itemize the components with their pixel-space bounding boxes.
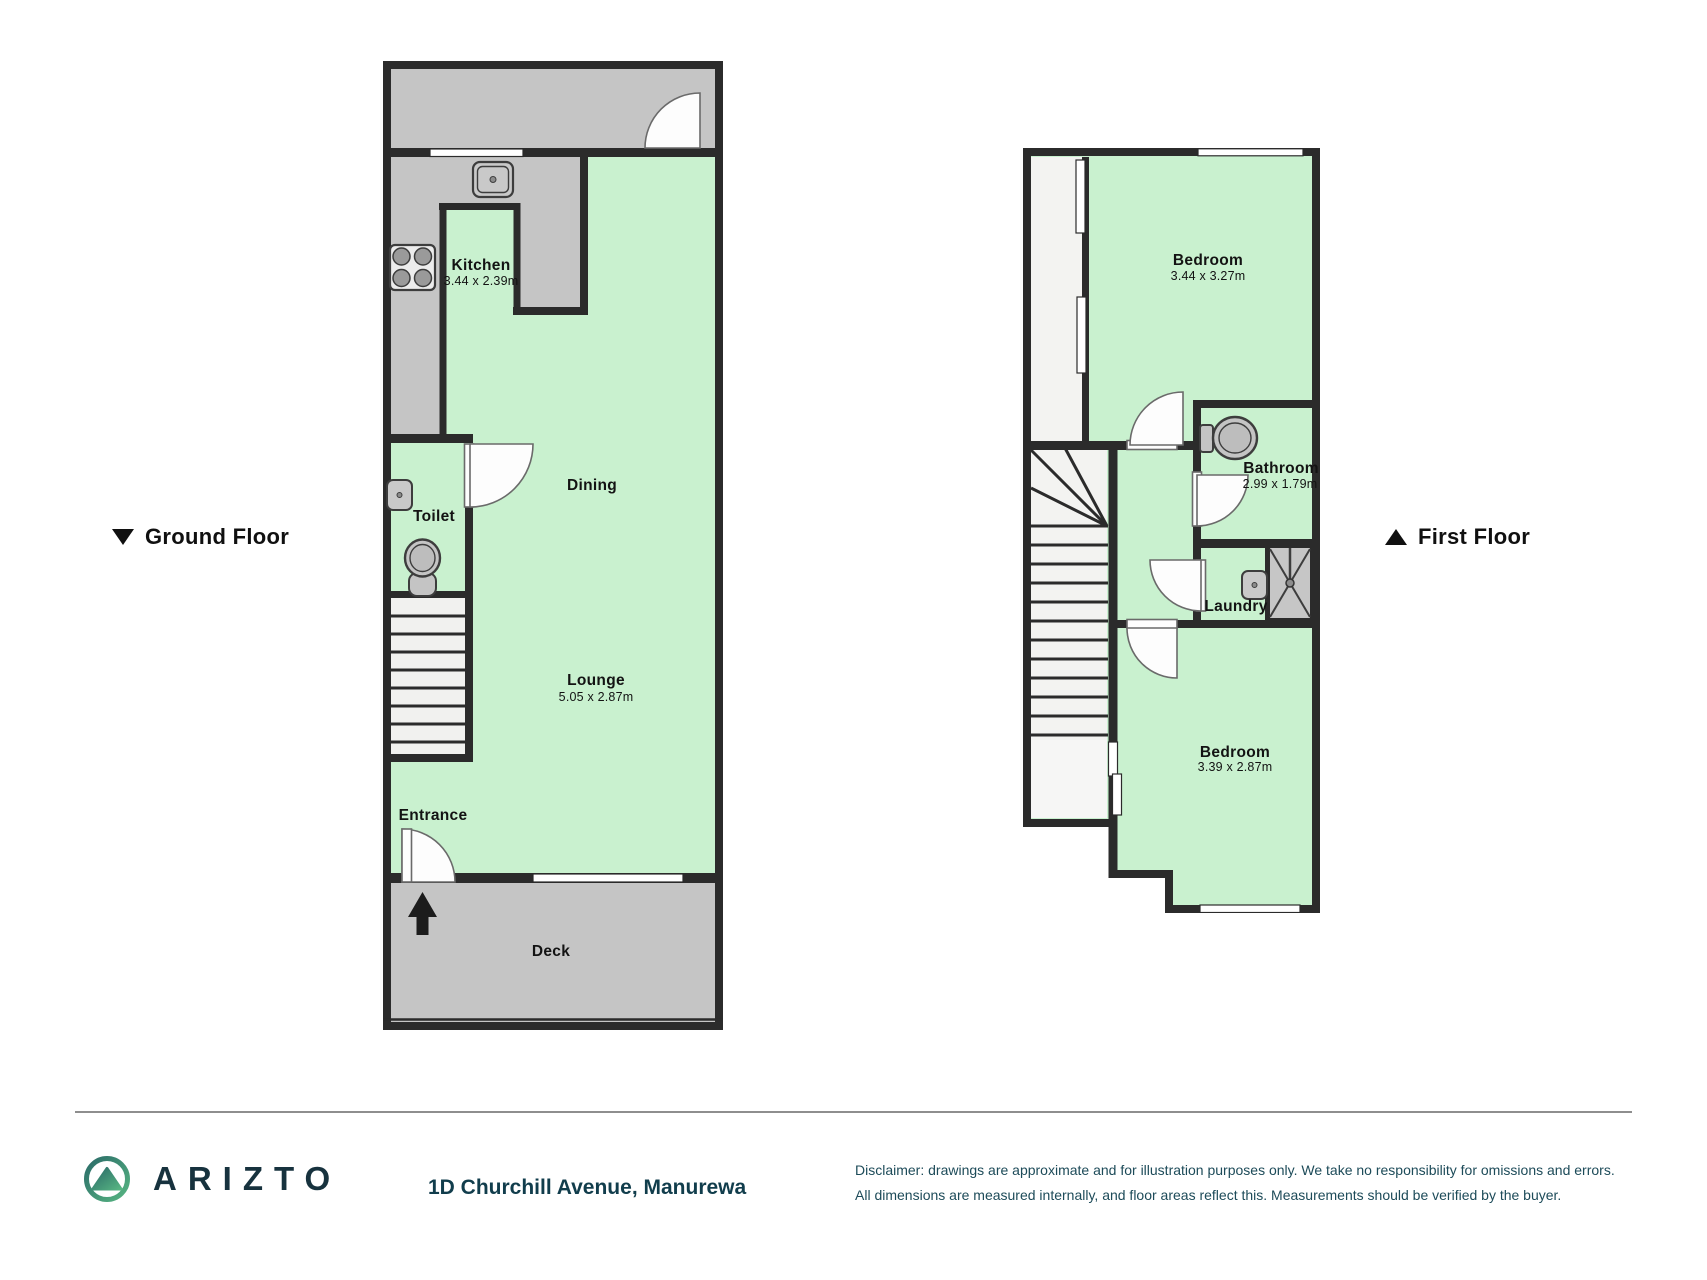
stove-icon — [390, 245, 435, 290]
ff-window-top — [1198, 149, 1303, 156]
floorplan-page: Kitchen 3.44 x 2.39m Toilet Dining Loung… — [0, 0, 1707, 1280]
first-floor-title-text: First Floor — [1418, 524, 1530, 550]
footer-divider — [75, 1111, 1632, 1113]
arizto-logo-icon — [83, 1155, 131, 1203]
brand-name: ARIZTO — [153, 1160, 341, 1198]
bedroom2-dims: 3.39 x 2.87m — [1198, 760, 1273, 774]
ff-window-void-a — [1109, 742, 1118, 776]
kitchen-sink-icon — [473, 162, 513, 197]
ff-bed2-door-leaf — [1127, 620, 1177, 629]
laundry-sink-icon — [1242, 571, 1267, 599]
first-floor-plan — [1023, 148, 1320, 913]
laundry-label: Laundry — [1204, 598, 1267, 616]
gf-staircase — [391, 598, 465, 754]
up-triangle-icon — [1385, 529, 1407, 545]
lounge-dims: 5.05 x 2.87m — [559, 690, 634, 704]
disclaimer-text: Disclaimer: drawings are approximate and… — [855, 1158, 1655, 1208]
first-floor-title: First Floor — [1385, 524, 1530, 550]
kitchen-dims: 3.44 x 2.39m — [444, 274, 519, 288]
ff-area-fills — [1023, 152, 1316, 913]
lounge-label: Lounge — [567, 672, 625, 690]
ff-window-void-b — [1113, 774, 1122, 815]
shower-icon — [1268, 546, 1313, 621]
disclaimer-line-1: Disclaimer: drawings are approximate and… — [855, 1158, 1655, 1183]
ground-floor-plan — [383, 61, 723, 1030]
gf-window-top — [430, 149, 523, 157]
entrance-label: Entrance — [399, 807, 468, 825]
disclaimer-line-2: All dimensions are measured internally, … — [855, 1183, 1655, 1208]
dining-label: Dining — [567, 477, 617, 495]
ground-floor-title-text: Ground Floor — [145, 524, 289, 550]
deck-label: Deck — [532, 943, 570, 961]
bedroom1-label: Bedroom — [1173, 252, 1243, 270]
kitchen-label: Kitchen — [452, 257, 511, 275]
toilet-sink-icon — [387, 480, 412, 510]
bathroom-dims: 2.99 x 1.79m — [1243, 477, 1318, 491]
bathroom-label: Bathroom — [1243, 460, 1319, 478]
gf-window-deck — [533, 874, 683, 882]
ff-window-bed1-b — [1077, 297, 1086, 373]
property-address: 1D Churchill Avenue, Manurewa — [428, 1176, 746, 1200]
gf-entrance-door-leaf — [402, 829, 412, 882]
toilet-label: Toilet — [413, 508, 455, 526]
ff-window-bottom — [1200, 905, 1300, 913]
toilet-icon — [405, 540, 440, 597]
bedroom1-dims: 3.44 x 3.27m — [1171, 269, 1246, 283]
ff-window-bed1-a — [1076, 160, 1085, 233]
ground-floor-title: Ground Floor — [112, 524, 289, 550]
down-triangle-icon — [112, 529, 134, 545]
